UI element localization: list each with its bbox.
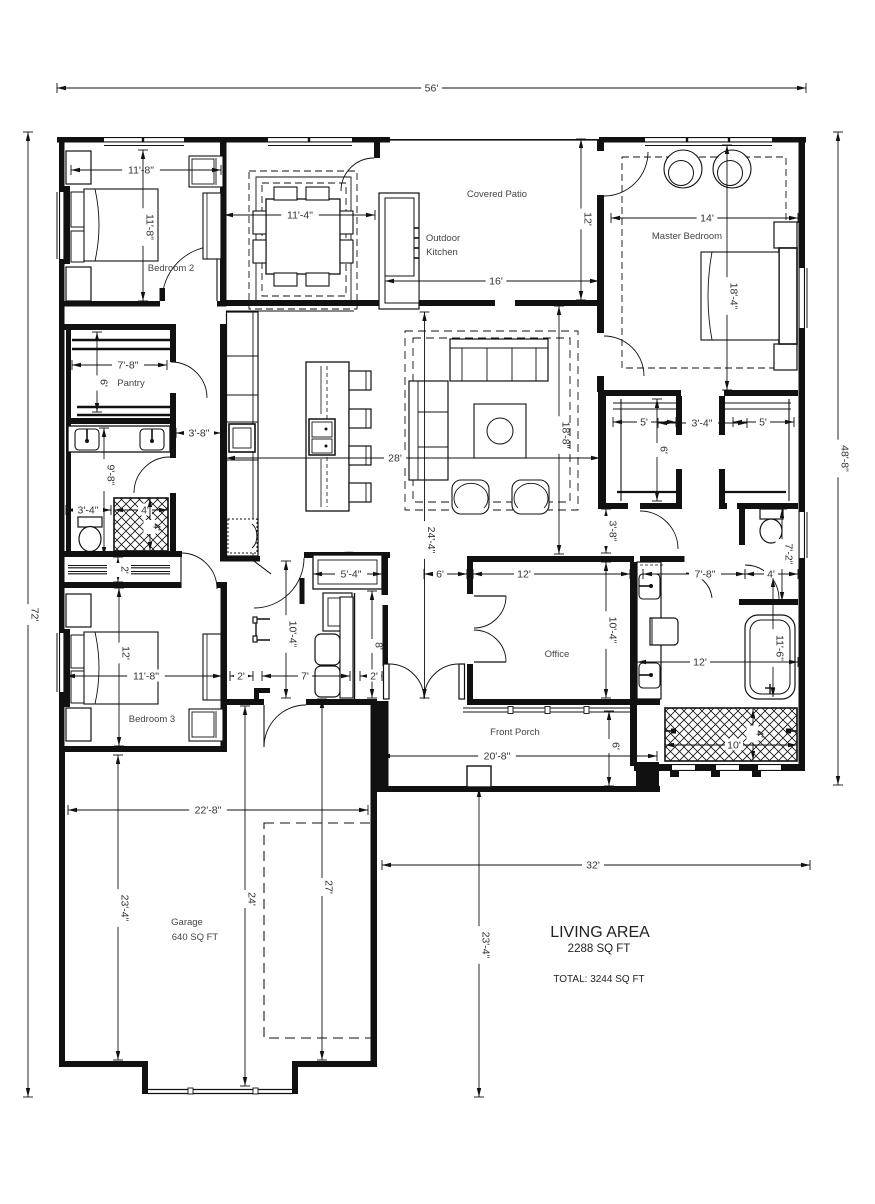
svg-text:10': 10': [727, 740, 741, 752]
svg-text:4': 4': [767, 569, 775, 581]
svg-text:11'-8": 11'-8": [133, 671, 159, 683]
svg-text:10'-4": 10'-4": [287, 621, 299, 648]
svg-text:LIVING AREA: LIVING AREA: [550, 924, 650, 941]
svg-text:Bedroom 3: Bedroom 3: [129, 714, 175, 725]
svg-text:22'-8": 22'-8": [195, 805, 222, 817]
svg-text:32': 32': [586, 860, 600, 872]
svg-text:12': 12': [582, 212, 594, 226]
svg-text:72': 72': [29, 608, 41, 622]
svg-text:11'-8": 11'-8": [144, 214, 156, 240]
svg-text:6': 6': [658, 446, 670, 454]
svg-text:27': 27': [323, 880, 335, 894]
svg-text:5': 5': [640, 417, 648, 429]
svg-text:Garage: Garage: [171, 917, 203, 928]
svg-text:16': 16': [489, 276, 503, 288]
svg-text:9'-8": 9'-8": [105, 465, 117, 486]
svg-text:28': 28': [388, 453, 402, 465]
svg-text:10'-4": 10'-4": [607, 617, 619, 644]
svg-text:Bedroom 2: Bedroom 2: [148, 263, 194, 274]
svg-text:18'-8": 18'-8": [560, 422, 572, 449]
svg-text:18'-4": 18'-4": [728, 283, 740, 310]
svg-text:20'-8": 20'-8": [484, 751, 511, 763]
svg-text:3'-8": 3'-8": [607, 521, 619, 542]
svg-text:6': 6': [610, 742, 622, 750]
svg-text:Kitchen: Kitchen: [426, 247, 458, 258]
svg-text:TOTAL: 3244 SQ FT: TOTAL: 3244 SQ FT: [553, 974, 644, 985]
svg-text:12': 12': [120, 646, 132, 660]
svg-text:23'-4": 23'-4": [480, 932, 492, 959]
svg-text:12': 12': [693, 657, 707, 669]
svg-text:24'-4": 24'-4": [425, 527, 437, 554]
svg-text:23'-4": 23'-4": [119, 895, 131, 922]
svg-text:11'-4": 11'-4": [287, 210, 313, 222]
svg-text:12': 12': [517, 569, 531, 581]
svg-text:7'-8": 7'-8": [695, 569, 716, 581]
svg-text:4': 4': [141, 505, 149, 517]
svg-text:4': 4': [151, 523, 163, 531]
svg-text:Pantry: Pantry: [117, 378, 145, 389]
svg-text:Covered Patio: Covered Patio: [467, 189, 527, 200]
svg-text:8': 8': [373, 642, 385, 650]
svg-text:7'-2": 7'-2": [783, 544, 795, 565]
svg-text:6': 6': [98, 379, 110, 387]
svg-text:640 SQ FT: 640 SQ FT: [172, 932, 219, 943]
svg-text:Front Porch: Front Porch: [490, 727, 540, 738]
svg-text:3'-4": 3'-4": [692, 418, 713, 430]
svg-text:24': 24': [246, 892, 258, 906]
svg-text:56': 56': [425, 83, 439, 95]
svg-text:4': 4': [754, 730, 766, 738]
svg-text:Office: Office: [545, 649, 570, 660]
svg-text:7'-8": 7'-8": [118, 360, 139, 372]
svg-text:11'-6": 11'-6": [774, 635, 786, 661]
svg-text:11'-8": 11'-8": [128, 165, 154, 177]
svg-text:3'-4": 3'-4": [78, 505, 99, 517]
svg-text:48'-8": 48'-8": [839, 445, 851, 472]
svg-text:6': 6': [436, 569, 444, 581]
svg-text:3'-8": 3'-8": [189, 428, 210, 440]
svg-text:14': 14': [700, 213, 714, 225]
svg-text:Master Bedroom: Master Bedroom: [652, 231, 722, 242]
svg-text:2': 2': [119, 566, 131, 574]
svg-text:2288 SQ FT: 2288 SQ FT: [568, 943, 631, 955]
svg-text:7': 7': [301, 671, 309, 683]
svg-text:2': 2': [237, 671, 245, 683]
svg-text:5': 5': [759, 417, 767, 429]
svg-text:Outdoor: Outdoor: [426, 233, 460, 244]
svg-text:5'-4": 5'-4": [341, 569, 362, 581]
svg-text:2': 2': [370, 671, 378, 683]
